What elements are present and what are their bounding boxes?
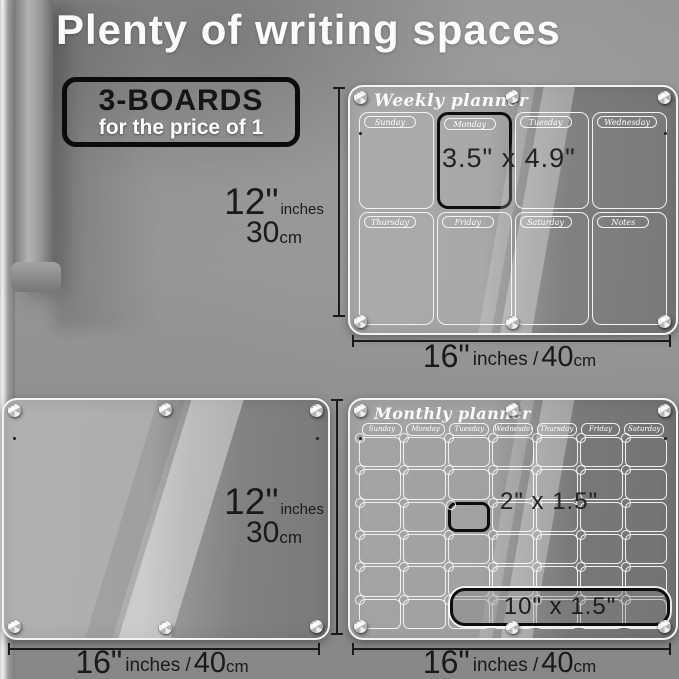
mounting-hole-icon — [316, 437, 319, 440]
monthly-grid-cell — [536, 437, 578, 467]
screw-icon — [658, 91, 671, 104]
width-metric-value: 40 — [541, 344, 573, 372]
width-metric-unit: cm — [226, 659, 249, 677]
monthly-grid-cell — [359, 566, 401, 596]
width-unit: inches / — [473, 351, 538, 371]
weekly-cell-thursday: Thursday — [359, 212, 434, 325]
monthly-grid-cell — [359, 502, 401, 532]
promo-badge-line1: 3-BOARDS — [99, 85, 264, 117]
screw-icon — [354, 315, 367, 328]
screw-icon — [506, 621, 519, 634]
day-pill: Thursday — [364, 216, 416, 228]
weekly-cell-friday: Friday — [437, 212, 512, 325]
monthly-grid-cell — [403, 566, 445, 596]
day-pill: Friday — [581, 423, 621, 436]
monthly-grid-cell — [580, 437, 622, 467]
height-unit: inches — [280, 503, 323, 519]
height-metric-unit: cm — [279, 230, 302, 248]
weekly-height-label: 12" inches 30 cm — [218, 184, 330, 248]
width-metric-unit: cm — [574, 659, 597, 677]
fridge-handle — [15, 0, 53, 282]
height-metric-value: 30 — [246, 219, 279, 248]
mounting-hole-icon — [664, 132, 667, 135]
screw-icon — [8, 620, 21, 633]
day-pill: Wednesday — [493, 423, 533, 436]
monthly-grid-cell — [625, 437, 667, 467]
screw-icon — [8, 404, 21, 417]
mounting-hole-icon — [359, 132, 362, 135]
monthly-grid-cell — [403, 534, 445, 564]
width-unit: inches / — [125, 657, 190, 677]
weekly-width-label: 16" inches / 40 cm — [352, 341, 667, 371]
monthly-cell-size-label: 2" x 1.5" — [500, 488, 598, 516]
day-pill: Friday — [442, 216, 494, 228]
blank-board-height-label: 12" inches 30 cm — [220, 484, 328, 548]
mounting-hole-icon — [359, 437, 362, 440]
screw-icon — [506, 403, 519, 416]
blank-height-dimension-line — [331, 399, 343, 635]
screw-icon — [354, 404, 367, 417]
monthly-grid-cell — [403, 437, 445, 467]
monthly-notes-bar: 10" x 1.5" — [450, 588, 670, 626]
monthly-grid-cell — [359, 469, 401, 499]
screw-icon — [506, 316, 519, 329]
monthly-grid-cell — [448, 534, 490, 564]
monthly-grid-cell — [448, 469, 490, 499]
monthly-grid-cell — [403, 599, 445, 629]
screw-icon — [310, 404, 323, 417]
monthly-grid-cell — [359, 437, 401, 467]
height-value: 12" — [224, 184, 278, 219]
monthly-grid-cell — [536, 534, 578, 564]
screw-icon — [658, 315, 671, 328]
blank-width-label: 16" inches / 40 cm — [8, 647, 316, 677]
screw-icon — [658, 620, 671, 633]
day-pill: Monday — [406, 423, 446, 436]
day-pill: Tuesday — [520, 116, 572, 128]
width-value: 16" — [75, 647, 122, 677]
day-pill: Monday — [444, 118, 496, 130]
height-metric-unit: cm — [279, 530, 302, 548]
monthly-grid-cell — [580, 534, 622, 564]
monthly-planner-board: Monthly planner Sunday Monday Tuesday We… — [348, 398, 678, 640]
day-pill: Thursday — [537, 423, 577, 436]
weekly-planner-board: Weekly planner Sunday Monday Tuesday Wed… — [348, 85, 678, 335]
screw-icon — [354, 91, 367, 104]
weekly-cell-notes: Notes — [592, 212, 667, 325]
screw-icon — [159, 621, 172, 634]
day-pill: Notes — [597, 216, 649, 228]
width-value: 16" — [423, 341, 470, 371]
screw-icon — [506, 90, 519, 103]
width-unit: inches / — [473, 657, 538, 677]
monthly-grid-cell — [625, 469, 667, 499]
weekly-cell-wednesday: Wednesday — [592, 112, 667, 209]
day-pill: Saturday — [520, 216, 572, 228]
monthly-day-row: Sunday Monday Tuesday Wednesday Thursday… — [362, 423, 664, 436]
monthly-grid-cell — [625, 534, 667, 564]
height-value: 12" — [224, 484, 278, 519]
screw-icon — [658, 404, 671, 417]
monthly-width-label: 16" inches / 40 cm — [352, 647, 667, 677]
day-pill: Sunday — [362, 423, 402, 436]
mounting-hole-icon — [664, 437, 667, 440]
day-pill: Sunday — [364, 116, 416, 128]
monthly-grid-cell — [403, 469, 445, 499]
monthly-grid-cell-highlighted — [448, 502, 490, 532]
weekly-cell-sunday: Sunday — [359, 112, 434, 209]
product-dimension-image: Plenty of writing spaces 3-BOARDS for th… — [0, 0, 679, 679]
screw-icon — [354, 620, 367, 633]
height-unit: inches — [280, 203, 323, 219]
monthly-grid-cell — [625, 502, 667, 532]
screw-icon — [310, 620, 323, 633]
monthly-grid-cell — [492, 534, 534, 564]
weekly-cell-size-label: 3.5" x 4.9" — [442, 143, 576, 174]
promo-badge: 3-BOARDS for the price of 1 — [62, 77, 300, 147]
width-metric-value: 40 — [541, 650, 573, 678]
reflection-stripe — [78, 398, 192, 640]
promo-badge-line2: for the price of 1 — [99, 117, 264, 139]
monthly-grid-cell — [492, 437, 534, 467]
screw-icon — [159, 403, 172, 416]
width-metric-value: 40 — [194, 650, 226, 678]
notes-size-label: 10" x 1.5" — [504, 593, 616, 621]
blank-acrylic-board: 12" inches 30 cm — [2, 398, 330, 640]
mounting-hole-icon — [13, 437, 16, 440]
weekly-cell-saturday: Saturday — [515, 212, 590, 325]
weekly-height-dimension-line — [333, 87, 345, 317]
weekly-board-title: Weekly planner — [374, 91, 528, 111]
width-value: 16" — [423, 647, 470, 677]
day-pill: Saturday — [624, 423, 664, 436]
height-metric-value: 30 — [246, 519, 279, 548]
monthly-grid-cell — [359, 534, 401, 564]
page-title: Plenty of writing spaces — [56, 6, 561, 54]
day-pill: Tuesday — [449, 423, 489, 436]
width-metric-unit: cm — [574, 353, 597, 371]
monthly-grid-cell — [403, 502, 445, 532]
monthly-grid-cell — [448, 437, 490, 467]
day-pill: Wednesday — [597, 116, 657, 128]
